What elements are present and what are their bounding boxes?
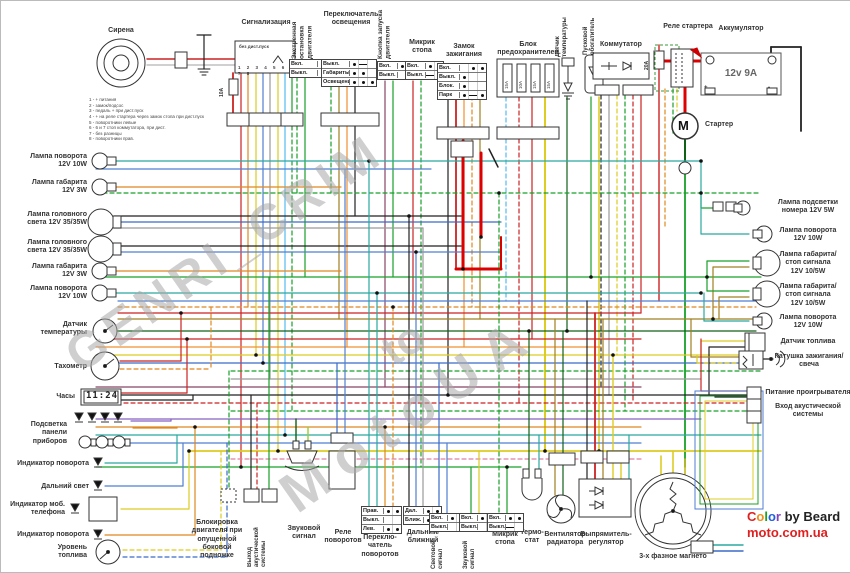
tachometer-gauge [91, 352, 119, 380]
temp-sensor-top-label: Датчик температуры [555, 3, 571, 57]
credit-text: Color by Beard [747, 509, 840, 524]
commutator-label: Коммутатор [591, 41, 651, 49]
contact-cell [359, 69, 368, 77]
row-label: Вкл. [430, 515, 448, 521]
clock-display: 11:24 [85, 391, 119, 401]
row-label: Дал. [404, 508, 424, 514]
table-row: Выкл. [322, 60, 376, 69]
rectifier-symbol [579, 451, 631, 517]
temp-gauge [93, 319, 117, 343]
contact-cell [506, 514, 515, 522]
contact-cell [448, 523, 457, 531]
credit-color-letter: C [747, 509, 756, 524]
contact-cell [469, 64, 478, 72]
row-label: Выкл. [406, 72, 426, 78]
contact-cell [478, 82, 486, 90]
table-row: Освещение [322, 78, 376, 86]
row-label: Выкл. [460, 524, 478, 530]
bottom-label-audio-output: Выход акустической системы [247, 515, 267, 567]
right-label-fuel-sensor: Датчик топлива [767, 338, 849, 346]
left-label-panel-illumination: Подсветка панели приборов [3, 421, 67, 446]
contact-cell [393, 507, 401, 515]
contact-cell [460, 64, 469, 72]
contact-cell [393, 516, 401, 524]
row-label: Вкл. [460, 515, 478, 521]
right-label-player-power: Питание проигрывателя [765, 389, 850, 397]
contact-cell [478, 64, 486, 72]
battery-label: Аккумулятор [709, 25, 773, 33]
contact-cell [478, 73, 486, 81]
credit-site-link[interactable]: moto.com.ua [747, 525, 828, 540]
row-label: Выкл. [362, 517, 384, 523]
indicator-led-symbols [71, 458, 117, 539]
left-label-tachometer: Тахометр [3, 363, 87, 371]
row-label: Выкл. [290, 70, 318, 76]
credit-rest: by Beard [781, 509, 840, 524]
contact-cell [368, 60, 376, 68]
left-label-high-beam-indicator: Дальний свет [3, 483, 89, 491]
contact-cell [469, 73, 478, 81]
left-label-fuel-gauge: Уровень топлива [3, 544, 87, 561]
table-row: Блок. [438, 82, 486, 91]
row-label: Выкл. [430, 524, 448, 530]
contact-cell [478, 523, 487, 531]
row-label: Освещение [322, 79, 350, 85]
table-row: Лев. [362, 525, 401, 533]
ignition-connector [437, 127, 489, 139]
row-label: Выкл. [488, 524, 506, 530]
left-label-turn-lamp-2: Лампа поворота 12V 10W [3, 285, 87, 302]
row-label: Вкл. [406, 63, 426, 69]
contact-cell [384, 507, 393, 515]
contact-cell [368, 69, 376, 77]
light-switch-label: Переключатель освещения [319, 11, 383, 28]
table-row: Прав. [362, 507, 401, 516]
right-label-ignition-coil: Катушка зажигания/ свеча [767, 353, 850, 370]
contact-cell [515, 514, 523, 522]
left-label-marker-lamp-2: Лампа габарита 12V 3W [3, 263, 87, 280]
fuse-2-label: 10А [518, 67, 523, 89]
contact-cell [426, 71, 435, 79]
row-label: Прав. [362, 508, 384, 514]
fusebox-connector [497, 127, 559, 139]
row-label: Вкл. [290, 61, 318, 67]
fuse-4-label: 15А [546, 67, 551, 89]
diagram-graphics [1, 1, 850, 572]
ignition-label: Замок зажигания [435, 43, 493, 60]
bottom-label-turn-switch: Переклю- чатель поворотов [357, 534, 403, 559]
contact-cell [469, 91, 478, 99]
bottom-label-sidestand: Блокировка двигателя при опущенной боков… [187, 519, 247, 560]
light-switch-connector [321, 113, 379, 126]
credit-color-letter: o [768, 509, 776, 524]
battery-minus: - [768, 85, 770, 92]
thermostat-symbol [522, 469, 542, 500]
siren-symbol [97, 39, 187, 87]
table-row: Выкл. [438, 73, 486, 82]
starter-label: Стартер [705, 121, 733, 129]
contact-cell [368, 78, 376, 86]
left-label-marker-lamp-1: Лампа габарита 12V 3W [3, 179, 87, 196]
fuse-1-label: 15А [504, 67, 509, 89]
battery-value: 12v 9A [713, 68, 769, 80]
contact-cell [384, 516, 393, 524]
row-label: Блок. [438, 83, 460, 89]
fan-symbol [547, 453, 575, 523]
right-label-stop-lamp-1: Лампа габарита/ стоп сигнала 12V 10/5W [767, 251, 849, 276]
row-label: Ближ. [404, 517, 424, 523]
left-lamp-symbols [88, 153, 121, 301]
table-row: Вкл. [488, 514, 523, 523]
alarm-inner-text: без дист.пуск [239, 44, 293, 50]
left-label-turn-indicator-2: Индикатор поворота [3, 531, 89, 539]
left-label-temp-gauge: Датчик температуры [3, 321, 87, 338]
table-row: Парк [438, 91, 486, 99]
contact-cell [350, 78, 359, 86]
row-label: Вкл. [378, 63, 398, 69]
contact-cell [460, 82, 469, 90]
contact-cell [515, 523, 523, 531]
fusebox-label: Блок предохранителей [491, 41, 565, 58]
bottom-label-magneto: 3-х фазное магнето [621, 553, 725, 561]
audio-power-plugs [747, 387, 761, 423]
commutator-symbol [593, 53, 653, 95]
row-label: Вкл. [438, 65, 460, 71]
right-label-audio-input: Вход акустической системы [767, 403, 849, 420]
alarm-label: Сигнализация [233, 19, 299, 27]
left-label-clock: Часы [3, 393, 75, 401]
light-switch-contact-table: Выкл. Габариты Освещение [321, 59, 377, 87]
right-label-turn-lamp-1: Лампа поворота 12V 10W [767, 227, 849, 244]
stop-micro-bottom-contact-table: Вкл. Выкл. [487, 513, 524, 532]
temp-sensor-symbol [562, 58, 574, 99]
turn-switch-contact-table: Прав. Выкл. Лев. [361, 506, 402, 534]
row-label: Выкл. [378, 72, 398, 78]
contact-cell [384, 525, 393, 533]
turn-relay-symbol [329, 433, 355, 489]
right-label-stop-lamp-2: Лампа габарита/ стоп сигнала 12V 10/5W [767, 283, 849, 308]
contact-cell [359, 60, 368, 68]
estop-label: Экстренная остановка двигателя [291, 3, 313, 59]
sidestand-plugs [221, 489, 277, 502]
contact-cell [506, 523, 515, 531]
table-row: Выкл. [362, 516, 401, 525]
horn-symbol [285, 441, 319, 471]
alarm-pin-numbers: 1 2 3 4 5 6 7 8 [238, 65, 294, 76]
wiring-diagram-canvas: GENRI_CRIM to MotoUA Сирена Сигнализация… [0, 0, 850, 573]
siren-label: Сирена [97, 27, 145, 35]
panel-illumination-symbols [75, 413, 130, 448]
contact-cell [359, 78, 368, 86]
contact-cell [350, 69, 359, 77]
bottom-label-rectifier: Выпрямитель- регулятор [577, 531, 635, 548]
contact-cell [469, 82, 478, 90]
contact-cell [460, 73, 469, 81]
battery-plus: + [704, 85, 708, 92]
right-label-turn-lamp-2: Лампа поворота 12V 10W [767, 314, 849, 331]
contact-cell [478, 91, 486, 99]
contact-cell [393, 525, 401, 533]
contact-cell [460, 91, 469, 99]
left-label-headlamp-1: Лампа головного света 12V 35/35W [3, 211, 87, 228]
starter-m-letter: M [678, 118, 689, 133]
ignition-contact-table: Вкл. Выкл. Блок. Парк [437, 63, 487, 100]
contact-cell [426, 62, 435, 70]
center-relay-symbol [451, 141, 473, 157]
row-label: Вкл. [488, 515, 506, 521]
diagram-notes: 1 - + питания 2 - замок/подсос 3 - педал… [89, 97, 249, 142]
table-row: Выкл. [488, 523, 523, 531]
fuel-gauge [96, 540, 120, 564]
start-button-label: Кнопка запуска двигателя [377, 3, 397, 59]
starter-relay-label: Реле стартера [663, 23, 713, 31]
left-label-headlamp-2: Лампа головного света 12V 35/35W [3, 239, 87, 256]
row-label: Выкл. [438, 74, 460, 80]
right-label-plate-lamp: Лампа подсветки номера 12V 5W [767, 199, 849, 216]
table-row: Габариты [322, 69, 376, 78]
row-label: Габариты [322, 70, 350, 76]
left-label-turn-lamp-1: Лампа поворота 12V 10W [3, 153, 87, 170]
contact-cell [448, 514, 457, 522]
contact-cell [350, 60, 359, 68]
row-label: Лев. [362, 526, 384, 532]
bottom-label-horn-1: Звуковой сигнал [283, 525, 325, 542]
contact-cell [478, 514, 487, 522]
alarm-fuse-label: 10А [220, 79, 226, 97]
table-row: Вкл. [438, 64, 486, 73]
row-label: Парк [438, 92, 460, 98]
row-label: Выкл. [322, 61, 350, 67]
left-label-turn-indicator-1: Индикатор поворота [3, 460, 89, 468]
fuse-3-label: 15А [532, 67, 537, 89]
fuse-20a-label: 20А [645, 52, 651, 70]
magneto-symbol [635, 473, 713, 553]
left-label-phone-indicator: Индикатор моб. телефона [3, 501, 65, 518]
